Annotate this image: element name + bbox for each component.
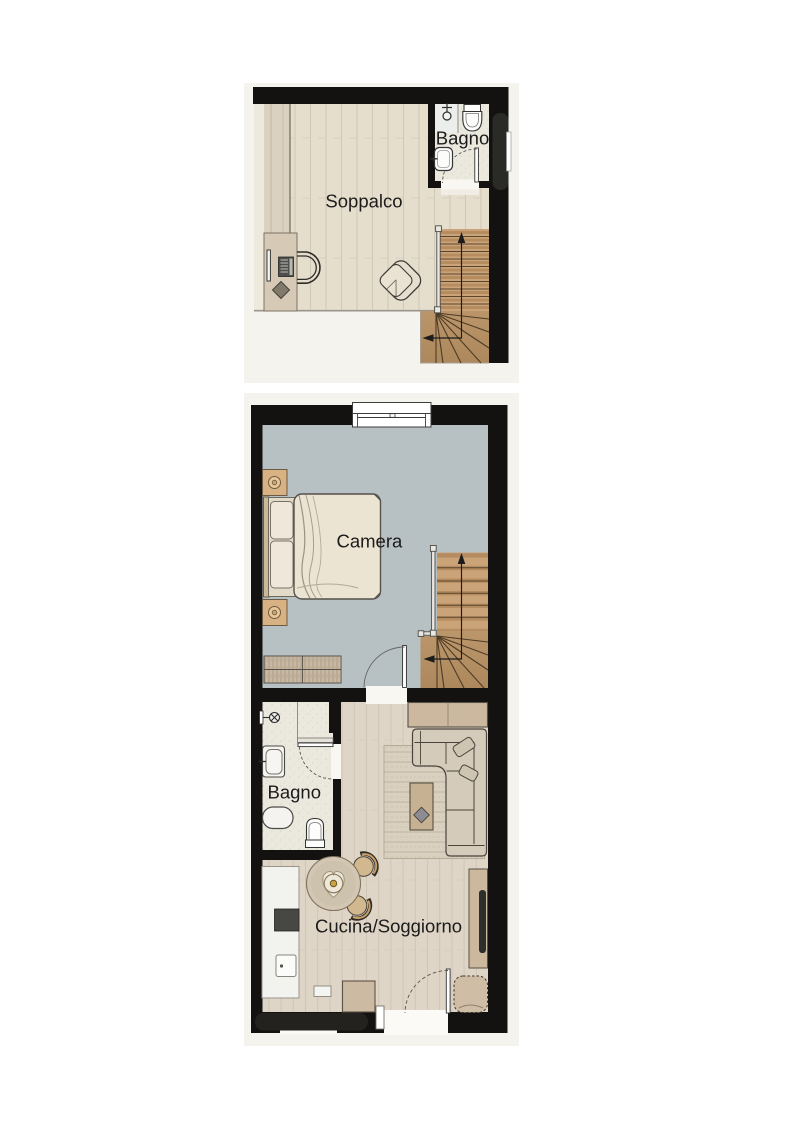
svg-text:Soppalco: Soppalco [325,191,402,212]
svg-text:Bagno: Bagno [268,782,322,803]
svg-text:Cucina/Soggiorno: Cucina/Soggiorno [315,916,462,937]
svg-text:Bagno: Bagno [436,128,490,149]
svg-text:Camera: Camera [337,531,404,552]
